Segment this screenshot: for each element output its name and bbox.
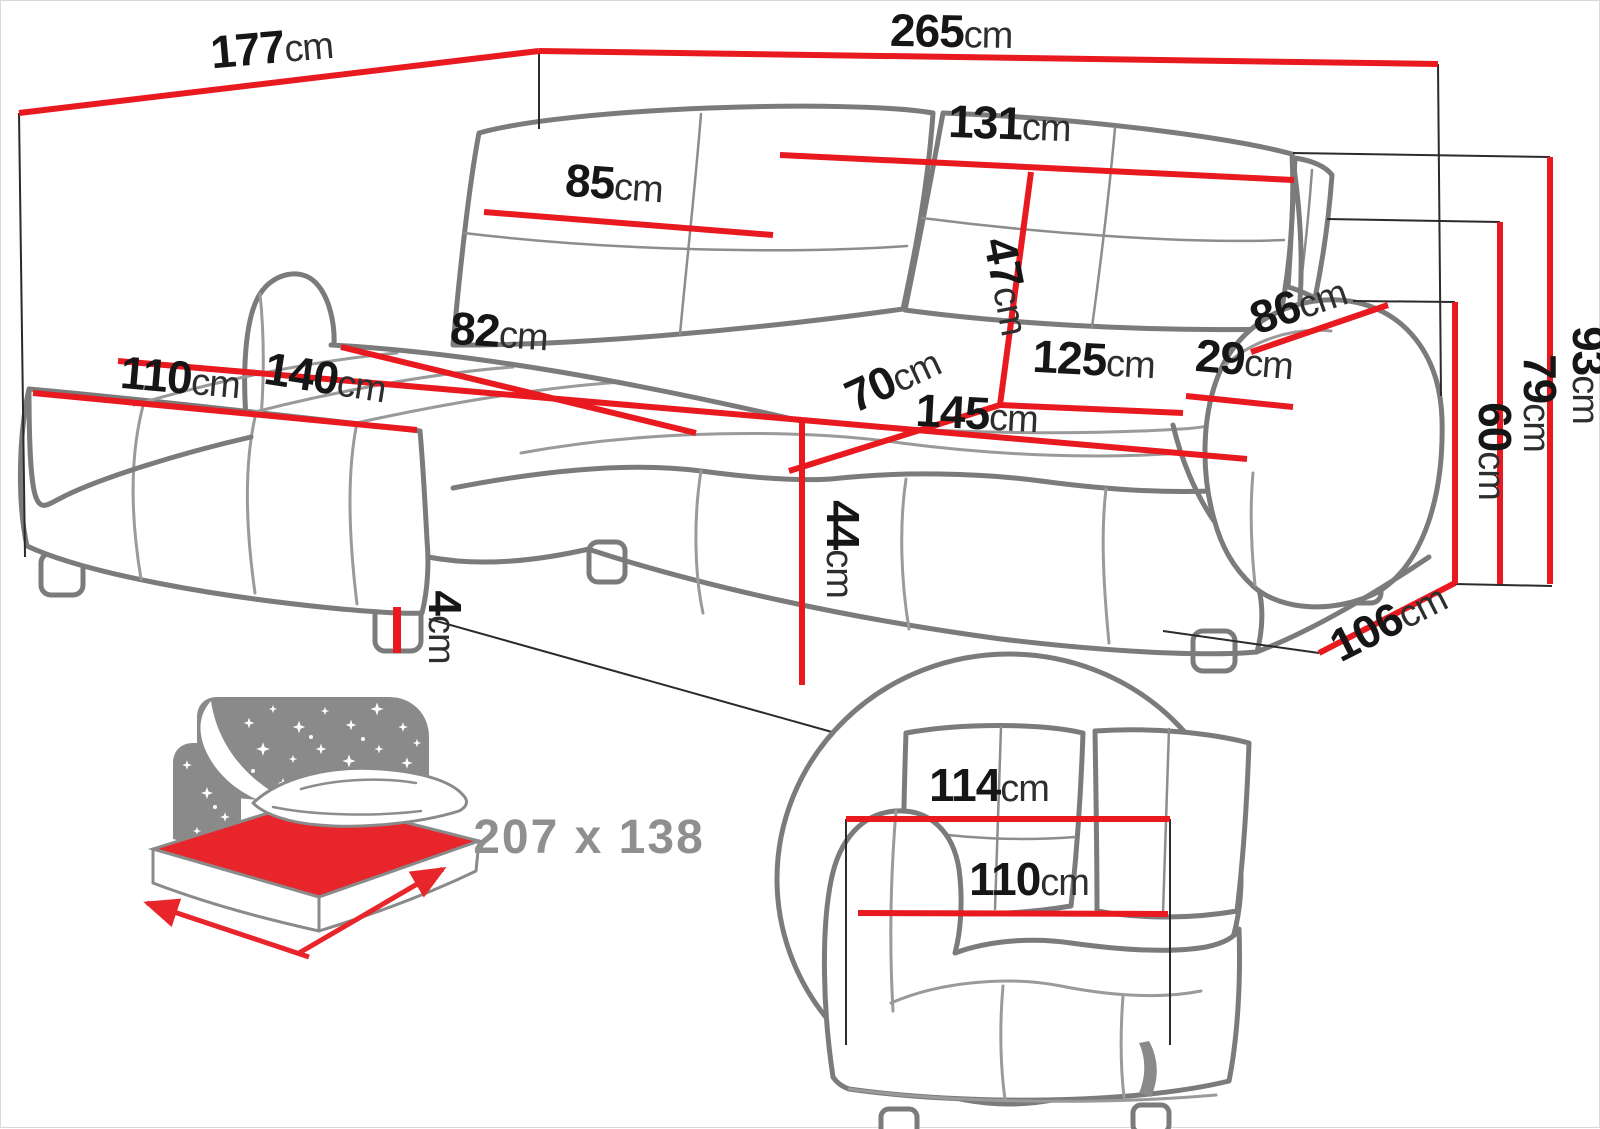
dimension-label-145: 145cm — [914, 384, 1039, 442]
sofa-leg — [589, 542, 625, 582]
dimension-label-125: 125cm — [1031, 330, 1156, 388]
detail-leg — [1133, 1105, 1169, 1129]
dimension-line-110b — [858, 913, 1168, 914]
sleeping-size-label: 207 x 138 — [473, 811, 705, 864]
bed-sleep-icon — [147, 697, 479, 957]
detail-connector-line — [429, 619, 832, 732]
dimension-label-265: 265cm — [890, 4, 1013, 58]
dimension-label-44: 44cm — [817, 500, 869, 598]
dimension-label-4: 4cm — [419, 590, 471, 663]
dimension-line-140 — [341, 347, 696, 433]
front-bottom-edge — [591, 550, 1262, 654]
front-connector — [428, 549, 589, 562]
diagram-canvas: 177cm 265cm 131cm 85cm 47cm 82cm 110cm 1… — [1, 1, 1600, 1129]
detail-circle: 114cm 110cm — [777, 654, 1249, 1129]
dimension-label-60: 60cm — [1469, 402, 1521, 500]
dimension-label-177: 177cm — [208, 16, 334, 78]
seat-front-edge — [453, 467, 1253, 491]
backrest-pillow-left — [453, 106, 933, 345]
dimension-label-131: 131cm — [947, 95, 1071, 151]
detail-leg — [881, 1109, 917, 1129]
sofa-dimension-diagram: 177cm 265cm 131cm 85cm 47cm 82cm 110cm 1… — [0, 0, 1600, 1128]
dimension-label-79: 79cm — [1514, 354, 1566, 452]
dimension-label-93: 93cm — [1563, 326, 1600, 424]
dimension-label-110: 110cm — [118, 346, 242, 408]
